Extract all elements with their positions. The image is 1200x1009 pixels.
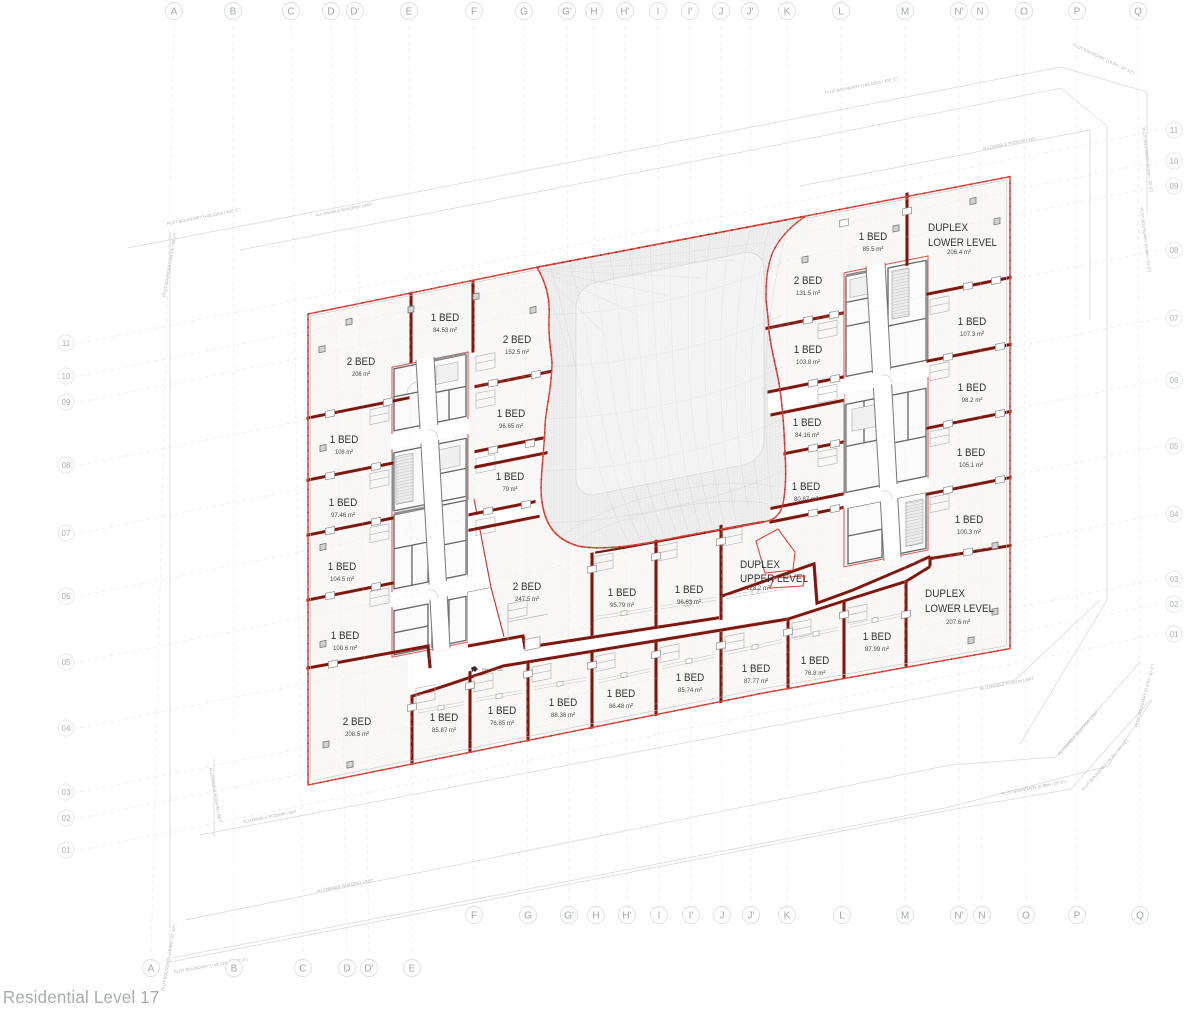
svg-text:96.63 m²: 96.63 m² <box>677 599 702 606</box>
svg-text:03: 03 <box>1170 575 1179 584</box>
svg-text:84.16 m²: 84.16 m² <box>795 432 820 439</box>
svg-text:1 BED: 1 BED <box>958 382 987 394</box>
svg-text:M: M <box>901 911 909 922</box>
svg-text:1 BED: 1 BED <box>549 697 578 709</box>
svg-text:86.48 m²: 86.48 m² <box>609 703 634 710</box>
svg-text:E: E <box>409 964 416 975</box>
svg-text:87.77 m²: 87.77 m² <box>744 678 769 685</box>
svg-text:Q: Q <box>1136 911 1144 922</box>
svg-text:1 BED: 1 BED <box>793 417 822 429</box>
svg-text:J: J <box>719 7 724 18</box>
svg-text:08: 08 <box>62 461 71 470</box>
svg-text:G': G' <box>562 7 572 18</box>
svg-text:DUPLEX: DUPLEX <box>928 222 968 234</box>
svg-text:1 BED: 1 BED <box>431 312 460 324</box>
svg-text:C: C <box>287 7 294 18</box>
svg-text:UPPER LEVEL: UPPER LEVEL <box>740 573 808 585</box>
svg-text:2 BED: 2 BED <box>503 334 532 346</box>
svg-text:88.36 m²: 88.36 m² <box>551 712 576 719</box>
svg-text:I': I' <box>688 7 693 18</box>
svg-text:79 m²: 79 m² <box>503 486 519 493</box>
svg-text:09: 09 <box>1170 182 1179 191</box>
svg-text:1 BED: 1 BED <box>488 705 517 717</box>
svg-text:1 BED: 1 BED <box>330 434 359 446</box>
svg-text:C: C <box>299 964 306 975</box>
svg-text:H: H <box>590 7 597 18</box>
svg-text:J': J' <box>748 911 755 922</box>
svg-text:85.5 m²: 85.5 m² <box>863 246 885 253</box>
svg-text:03: 03 <box>62 788 71 797</box>
svg-text:108 m²: 108 m² <box>335 449 354 456</box>
svg-text:76.8 m²: 76.8 m² <box>805 670 827 677</box>
svg-text:G: G <box>520 7 528 18</box>
svg-text:B: B <box>230 7 237 18</box>
svg-text:H: H <box>592 911 599 922</box>
svg-text:2 BED: 2 BED <box>794 275 823 287</box>
svg-text:98.2 m²: 98.2 m² <box>962 397 984 404</box>
svg-text:A: A <box>148 964 155 975</box>
svg-text:152.5 m²: 152.5 m² <box>505 349 530 356</box>
svg-text:E: E <box>406 7 413 18</box>
svg-text:10: 10 <box>1170 157 1179 166</box>
svg-text:D: D <box>343 964 350 975</box>
svg-text:N: N <box>976 7 983 18</box>
svg-text:2 BED: 2 BED <box>347 356 376 368</box>
svg-text:1 BED: 1 BED <box>607 688 636 700</box>
svg-text:2 BED: 2 BED <box>513 581 542 593</box>
svg-text:80.87 m²: 80.87 m² <box>794 496 819 503</box>
svg-text:1 BED: 1 BED <box>958 316 987 328</box>
svg-text:1 BED: 1 BED <box>957 447 986 459</box>
svg-text:1 BED: 1 BED <box>801 655 830 667</box>
svg-text:I: I <box>657 7 660 18</box>
svg-text:G': G' <box>564 911 574 922</box>
svg-text:97.46 m²: 97.46 m² <box>331 512 356 519</box>
svg-text:Q: Q <box>1134 7 1142 18</box>
svg-text:P: P <box>1074 911 1081 922</box>
svg-text:247.5 m²: 247.5 m² <box>515 596 540 603</box>
svg-text:206 m²: 206 m² <box>352 371 371 378</box>
svg-text:1 BED: 1 BED <box>742 663 771 675</box>
svg-text:L: L <box>839 911 845 922</box>
svg-text:1 BED: 1 BED <box>328 561 357 573</box>
svg-text:11: 11 <box>1170 126 1179 135</box>
svg-text:N': N' <box>954 7 963 18</box>
svg-text:02: 02 <box>1170 600 1179 609</box>
svg-text:1 BED: 1 BED <box>955 514 984 526</box>
svg-text:85.74 m²: 85.74 m² <box>678 687 703 694</box>
svg-text:105.1 m²: 105.1 m² <box>959 462 984 469</box>
svg-text:1 BED: 1 BED <box>676 672 705 684</box>
svg-text:1 BED: 1 BED <box>859 231 888 243</box>
svg-text:LOWER LEVEL: LOWER LEVEL <box>928 237 997 249</box>
svg-text:K: K <box>784 911 791 922</box>
svg-text:J: J <box>720 911 725 922</box>
svg-text:1 BED: 1 BED <box>329 497 358 509</box>
svg-text:I: I <box>658 911 661 922</box>
svg-text:207.6 m²: 207.6 m² <box>946 619 971 626</box>
svg-text:208.5 m²: 208.5 m² <box>345 731 370 738</box>
svg-text:01: 01 <box>1170 630 1179 639</box>
svg-text:DUPLEX: DUPLEX <box>740 559 780 571</box>
svg-text:103.8 m²: 103.8 m² <box>796 359 821 366</box>
svg-text:D': D' <box>364 964 373 975</box>
svg-text:2 BED: 2 BED <box>343 716 372 728</box>
svg-text:06: 06 <box>62 592 71 601</box>
svg-text:DUPLEX: DUPLEX <box>925 588 965 600</box>
svg-text:95.79 m²: 95.79 m² <box>610 602 635 609</box>
svg-text:11: 11 <box>62 339 71 348</box>
svg-text:1 BED: 1 BED <box>863 631 892 643</box>
svg-text:Residential Level 17: Residential Level 17 <box>3 987 160 1007</box>
svg-text:104.5 m²: 104.5 m² <box>330 576 355 583</box>
svg-text:01: 01 <box>62 846 71 855</box>
svg-text:09: 09 <box>62 398 71 407</box>
svg-text:H': H' <box>620 7 629 18</box>
svg-text:04: 04 <box>1170 510 1179 519</box>
svg-text:L: L <box>838 7 844 18</box>
svg-text:D: D <box>327 7 334 18</box>
svg-text:N': N' <box>954 911 963 922</box>
svg-text:1 BED: 1 BED <box>608 587 637 599</box>
svg-text:1 BED: 1 BED <box>675 584 704 596</box>
svg-text:206.4 m²: 206.4 m² <box>947 249 972 256</box>
svg-text:I': I' <box>689 911 694 922</box>
svg-text:04: 04 <box>62 724 71 733</box>
svg-text:1 BED: 1 BED <box>430 712 459 724</box>
svg-text:O: O <box>1020 7 1028 18</box>
svg-text:100.6 m²: 100.6 m² <box>333 645 358 652</box>
svg-text:05: 05 <box>1170 442 1179 451</box>
svg-text:107.3 m²: 107.3 m² <box>960 331 985 338</box>
svg-text:G: G <box>524 911 532 922</box>
svg-text:J': J' <box>747 7 754 18</box>
svg-text:10: 10 <box>62 372 71 381</box>
svg-text:A: A <box>171 7 178 18</box>
svg-text:D': D' <box>350 7 359 18</box>
svg-text:B: B <box>231 964 238 975</box>
svg-text:O: O <box>1022 911 1030 922</box>
svg-text:76.85 m²: 76.85 m² <box>490 720 515 727</box>
svg-text:N: N <box>978 911 985 922</box>
svg-text:P: P <box>1074 7 1081 18</box>
svg-text:05: 05 <box>62 658 71 667</box>
svg-text:LOWER LEVEL: LOWER LEVEL <box>925 603 994 615</box>
svg-text:1 BED: 1 BED <box>792 481 821 493</box>
svg-text:100.3 m²: 100.3 m² <box>957 529 982 536</box>
svg-text:F: F <box>471 7 477 18</box>
svg-text:08: 08 <box>1170 246 1179 255</box>
svg-text:07: 07 <box>62 529 71 538</box>
svg-text:K: K <box>784 7 791 18</box>
svg-text:M: M <box>901 7 909 18</box>
svg-text:1 BED: 1 BED <box>331 630 360 642</box>
svg-text:96.65 m²: 96.65 m² <box>499 423 524 430</box>
svg-text:1 BED: 1 BED <box>496 471 525 483</box>
svg-text:1 BED: 1 BED <box>497 408 526 420</box>
svg-text:84.53 m²: 84.53 m² <box>433 327 458 334</box>
svg-text:02: 02 <box>62 814 71 823</box>
svg-text:1 BED: 1 BED <box>794 344 823 356</box>
svg-text:87.99 m²: 87.99 m² <box>865 646 890 653</box>
svg-text:FFL +87.29: FFL +87.29 <box>482 667 503 672</box>
svg-text:131.5 m²: 131.5 m² <box>796 290 821 297</box>
svg-text:128.2 m²: 128.2 m² <box>746 585 771 592</box>
svg-text:06: 06 <box>1170 376 1179 385</box>
svg-text:85.87 m²: 85.87 m² <box>432 727 457 734</box>
svg-text:07: 07 <box>1170 314 1179 323</box>
svg-text:H': H' <box>622 911 631 922</box>
svg-text:F: F <box>471 911 477 922</box>
